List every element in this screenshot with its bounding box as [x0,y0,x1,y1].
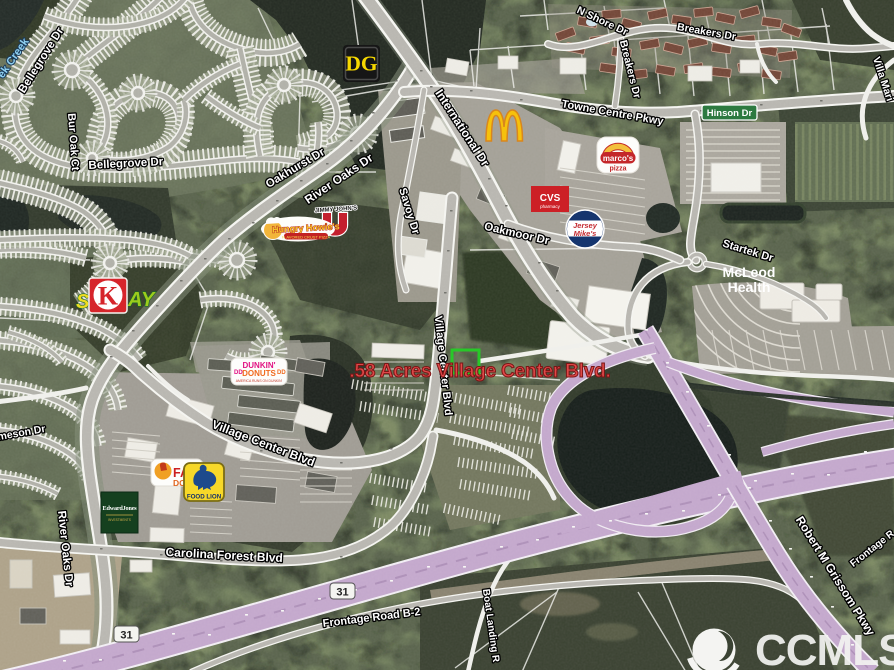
svg-text:INVESTMENTS: INVESTMENTS [108,518,131,522]
svg-text:31: 31 [120,630,132,642]
svg-text:marco's: marco's [603,154,634,163]
svg-text:K: K [98,282,119,311]
svg-text:31: 31 [336,587,348,599]
svg-text:Hinson Dr: Hinson Dr [707,108,753,119]
svg-text:FOOD LION: FOOD LION [187,494,222,501]
svg-text:FLAVORED CRUST PIZZA: FLAVORED CRUST PIZZA [282,234,331,239]
svg-text:S: S [76,291,90,313]
svg-text:Health: Health [728,279,771,295]
svg-text:AY: AY [127,289,156,311]
svg-text:DG: DG [345,52,378,76]
svg-text:DONUTS: DONUTS [242,369,276,378]
svg-text:Mike's: Mike's [574,229,597,238]
svg-text:CCMLS: CCMLS [755,626,894,670]
svg-text:AMERICA RUNS ON DUNKIN': AMERICA RUNS ON DUNKIN' [236,379,283,383]
svg-text:CVS: CVS [540,193,561,204]
svg-text:DD: DD [277,370,286,376]
svg-text:pizza: pizza [609,166,626,173]
svg-text:McLeod: McLeod [723,264,776,280]
svg-text:EdwardJones: EdwardJones [103,505,138,512]
svg-text:DD: DD [234,370,243,376]
svg-text:pharmacy: pharmacy [540,204,561,209]
svg-text:.58 Acres Village Center Blvd.: .58 Acres Village Center Blvd. [349,361,610,382]
